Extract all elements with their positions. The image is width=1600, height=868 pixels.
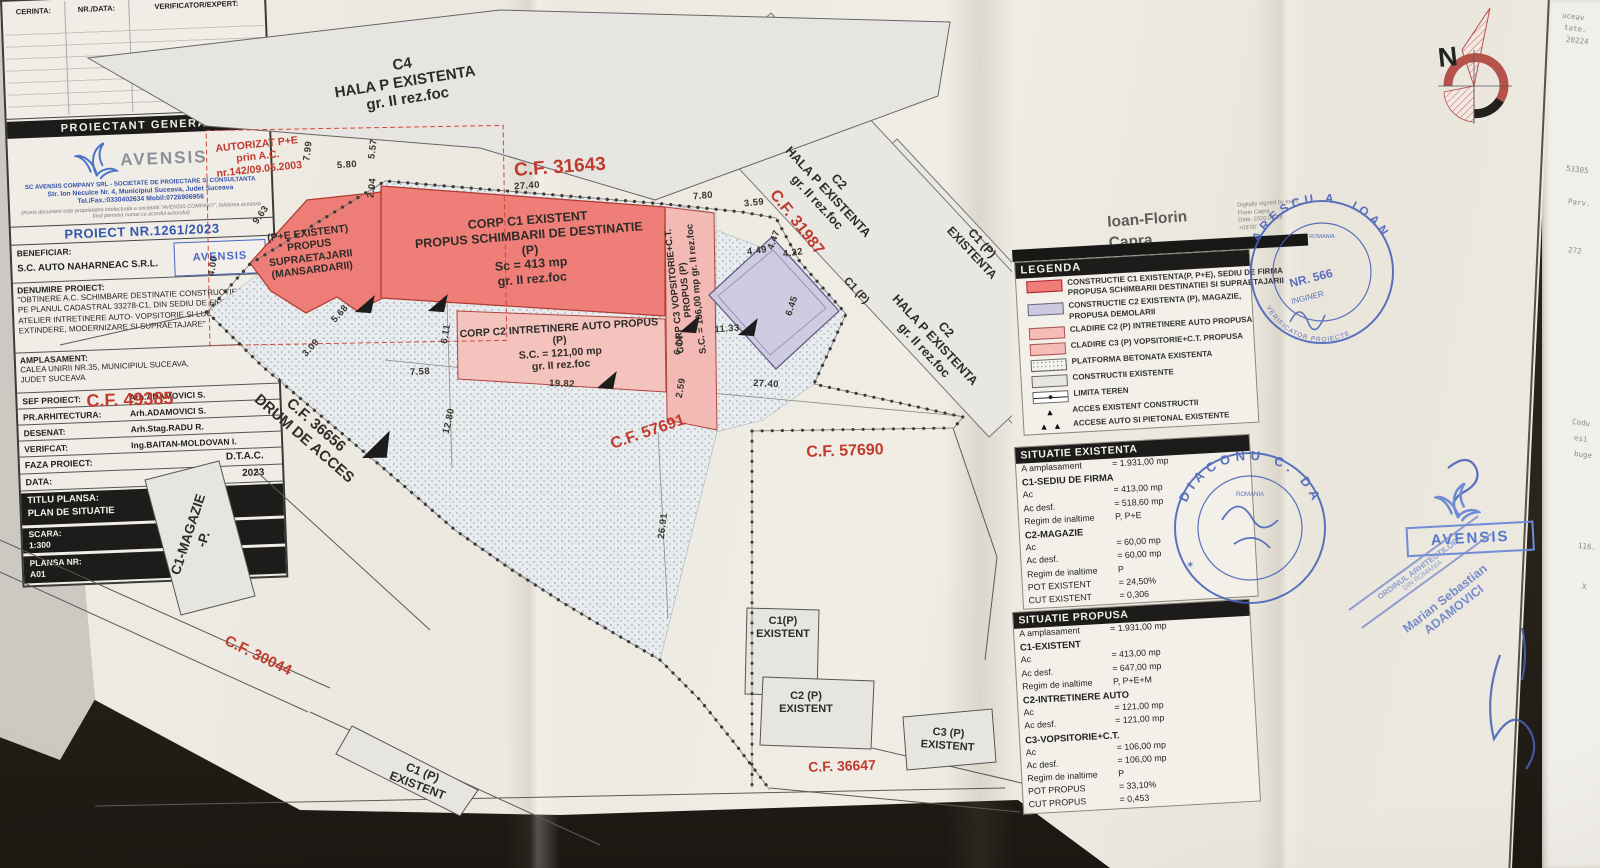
dim: 27.40 (753, 378, 779, 390)
label-c2p-existent-box: C2 (P) EXISTENT (763, 690, 849, 716)
triangle-icon: ▲ (1033, 406, 1068, 418)
situatie-propusa-table: SITUATIE PROPUSA A amplasament= 1.931,00… (1012, 599, 1261, 815)
legend-swatch-hatch (1031, 358, 1068, 372)
legend-swatch-red (1026, 279, 1063, 293)
legend-item-label: CONSTRUCTII EXISTENTE (1072, 367, 1174, 383)
legend-swatch-lavender (1027, 303, 1064, 317)
north-arrow-icon (1408, 0, 1538, 140)
dim: 27.40 (514, 180, 540, 193)
label-cf-57690: C.F. 57690 (806, 441, 884, 463)
north-letter: N (1436, 41, 1459, 74)
legend-swatch-gray (1031, 374, 1068, 388)
label-cf-36647: C.F. 36647 (808, 757, 876, 776)
legend: LEGENDA CONSTRUCTIE C1 EXISTENTA(P, P+E)… (1014, 249, 1259, 435)
legend-swatch-pink (1029, 326, 1066, 340)
edge-fragment: 272 (1568, 245, 1583, 256)
dim: 7.58 (410, 366, 431, 378)
dim: 7.80 (693, 190, 714, 203)
edge-fragment: esi (1574, 433, 1589, 444)
double-triangle-icon: ▲ ▲ (1034, 420, 1069, 432)
edge-fragment: X (1581, 582, 1587, 591)
second-page-edge (1542, 0, 1600, 868)
label-cf-49385: C.F. 49385 (86, 388, 174, 412)
legend-swatch-limit-line (1032, 390, 1069, 404)
dim: 11.33 (714, 323, 740, 336)
signature-digital-text: Digitally signed by Ioan- Florin Capra D… (1237, 197, 1317, 232)
legend-swatch-pink (1030, 342, 1067, 356)
dim: 3.59 (743, 196, 764, 209)
dim: 5.80 (337, 159, 358, 171)
situatie-existenta-table: SITUATIE EXISTENTA A amplasament= 1.931,… (1014, 434, 1259, 610)
legend-item-label: LIMITA TEREN (1073, 386, 1129, 399)
dim: 19.82 (549, 378, 575, 390)
label-c1p-existent-box: C1(P) EXISTENT (741, 615, 825, 641)
